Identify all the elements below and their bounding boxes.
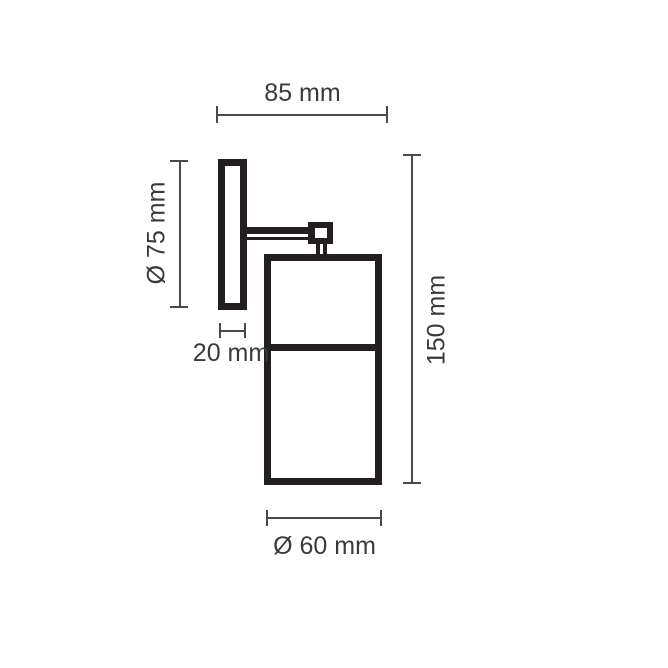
dimension-tick-60-left (266, 510, 268, 526)
dimension-line-60 (267, 517, 382, 519)
dimension-tick-20-right (244, 323, 246, 338)
dimension-tick-75-bottom (170, 306, 188, 308)
dimension-tick-60-right (380, 510, 382, 526)
wall-backplate (218, 159, 247, 310)
pivot-joint-cutout (315, 228, 327, 238)
dimension-label-top-width: 85 mm (217, 80, 388, 108)
dimension-label-backplate-diameter: Ø 75 mm (143, 182, 171, 285)
dimension-tick-20-left (219, 323, 221, 338)
dimension-tick-150-top (403, 154, 421, 156)
dimension-tick-85-right (386, 106, 388, 123)
dimension-line-85 (217, 114, 388, 116)
dimension-tick-85-left (216, 106, 218, 123)
dimension-line-75 (179, 161, 181, 308)
mounting-arm-top-edge (246, 227, 309, 234)
dimension-tick-75-top (170, 160, 188, 162)
lamp-body (264, 254, 382, 485)
dimension-line-20 (220, 330, 245, 332)
dimension-label-backplate-depth: 20 mm (186, 340, 276, 368)
dimension-label-overall-height: 150 mm (423, 275, 451, 365)
mounting-arm-bottom-edge (246, 237, 309, 240)
lamp-body-seam (264, 344, 382, 351)
dimension-drawing: 85 mm Ø 75 mm 20 mm 150 mm Ø 60 mm (0, 0, 668, 668)
dimension-line-150 (411, 155, 413, 484)
dimension-label-body-diameter: Ø 60 mm (267, 533, 382, 561)
dimension-tick-150-bottom (403, 482, 421, 484)
